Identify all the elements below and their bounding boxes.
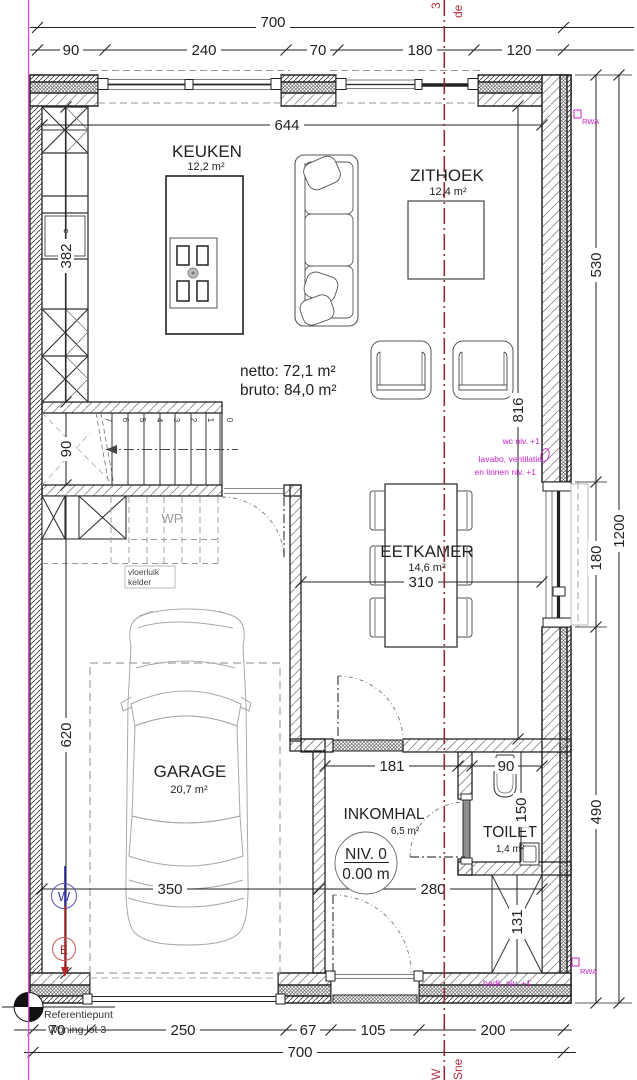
- svg-text:wc niv. +1: wc niv. +1: [502, 436, 541, 446]
- svg-text:816: 816: [510, 397, 527, 422]
- svg-text:de: de: [451, 4, 465, 18]
- svg-text:kelder: kelder: [128, 577, 151, 587]
- svg-text:240: 240: [191, 42, 216, 59]
- svg-text:181: 181: [379, 758, 404, 775]
- svg-text:TOILET: TOILET: [483, 824, 538, 841]
- svg-text:6: 6: [121, 418, 130, 423]
- svg-text:250: 250: [170, 1022, 195, 1039]
- svg-text:310: 310: [408, 574, 433, 591]
- svg-text:1: 1: [206, 418, 215, 423]
- svg-text:90: 90: [498, 758, 515, 775]
- svg-text:12,2 m²: 12,2 m²: [187, 161, 225, 173]
- svg-text:GARAGE: GARAGE: [154, 762, 227, 781]
- svg-text:RWA: RWA: [582, 117, 599, 126]
- svg-text:bruto: 84,0 m²: bruto: 84,0 m²: [240, 382, 337, 399]
- svg-text:382: 382: [58, 243, 75, 268]
- svg-text:7: 7: [104, 418, 113, 423]
- svg-text:W: W: [429, 1068, 443, 1080]
- svg-text:E: E: [60, 943, 68, 957]
- svg-text:lavabo, ventilatie: lavabo, ventilatie: [479, 454, 543, 464]
- svg-text:0: 0: [225, 418, 234, 423]
- svg-text:3: 3: [172, 418, 181, 423]
- svg-text:700: 700: [287, 1044, 312, 1061]
- svg-text:280: 280: [420, 881, 445, 898]
- svg-text:20,7 m²: 20,7 m²: [170, 784, 208, 796]
- svg-text:WP: WP: [162, 511, 183, 526]
- svg-text:Sne: Sne: [451, 1058, 465, 1080]
- svg-text:105: 105: [360, 1022, 385, 1039]
- svg-text:1200: 1200: [611, 514, 628, 547]
- svg-text:ZITHOEK: ZITHOEK: [410, 166, 484, 185]
- svg-text:180: 180: [588, 545, 605, 570]
- svg-text:KEUKEN: KEUKEN: [172, 142, 242, 161]
- svg-text:0.00 m: 0.00 m: [342, 866, 389, 883]
- svg-text:Woning lot 3: Woning lot 3: [48, 1024, 106, 1036]
- svg-text:4: 4: [155, 418, 164, 423]
- svg-text:vloerluik: vloerluik: [128, 567, 160, 577]
- svg-text:12,4 m²: 12,4 m²: [429, 186, 467, 198]
- svg-text:90: 90: [63, 42, 80, 59]
- svg-text:67: 67: [300, 1022, 317, 1039]
- svg-text:620: 620: [58, 722, 75, 747]
- svg-text:131: 131: [509, 909, 526, 934]
- svg-text:RWA: RWA: [580, 967, 597, 976]
- svg-text:70: 70: [310, 42, 327, 59]
- svg-text:badk. niv. +1: badk. niv. +1: [483, 978, 531, 988]
- svg-text:W: W: [58, 889, 71, 904]
- svg-text:120: 120: [506, 42, 531, 59]
- svg-text:5: 5: [138, 418, 147, 423]
- svg-text:14,6 m²: 14,6 m²: [408, 562, 446, 574]
- svg-text:6,5 m²: 6,5 m²: [391, 826, 420, 837]
- svg-text:Referentiepunt: Referentiepunt: [44, 1009, 113, 1021]
- svg-text:en linnen niv. +1: en linnen niv. +1: [474, 467, 536, 477]
- svg-text:490: 490: [588, 799, 605, 824]
- svg-text:644: 644: [274, 117, 299, 134]
- svg-text:2: 2: [189, 418, 198, 423]
- svg-text:530: 530: [588, 252, 605, 277]
- svg-text:90: 90: [58, 441, 75, 458]
- svg-text:INKOMHAL: INKOMHAL: [344, 806, 425, 823]
- svg-text:1,4 m²: 1,4 m²: [496, 844, 525, 855]
- svg-text:EETKAMER: EETKAMER: [380, 542, 474, 561]
- svg-text:350: 350: [157, 881, 182, 898]
- svg-text:NIV. 0: NIV. 0: [345, 846, 387, 863]
- svg-text:180: 180: [407, 42, 432, 59]
- svg-text:700: 700: [260, 14, 285, 31]
- svg-text:200: 200: [480, 1022, 505, 1039]
- svg-text:150: 150: [513, 797, 530, 822]
- svg-text:3: 3: [429, 2, 443, 9]
- svg-text:netto: 72,1 m²: netto: 72,1 m²: [240, 363, 336, 380]
